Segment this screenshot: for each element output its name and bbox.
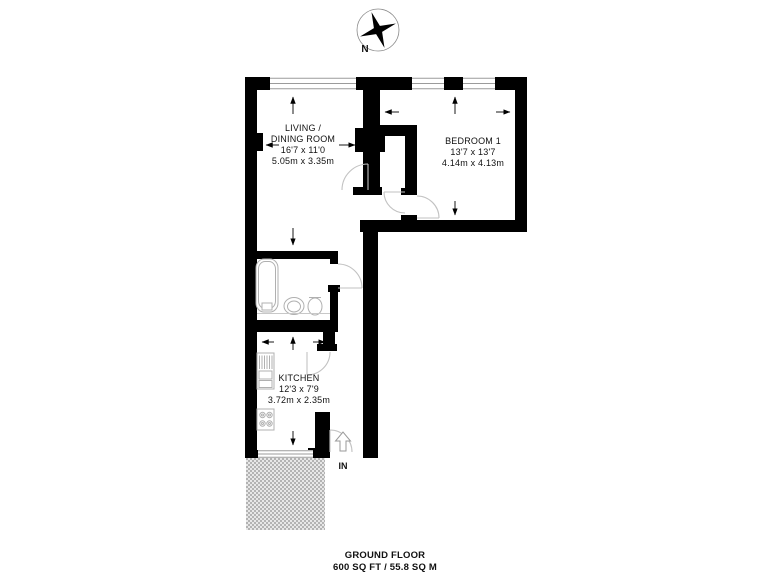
compass-icon: N [357,9,399,55]
entrance: IN [336,432,351,471]
footer: GROUND FLOOR 600 SQ FT / 55.8 SQ M [333,550,437,573]
wall-bedroom-right [515,77,527,232]
window-bedroom-2 [463,77,495,90]
hob-icon [257,409,274,430]
room-name: KITCHEN [279,373,320,383]
room-label-living-dining: LIVING / DINING ROOM 16'7 x 11'0 5.05m x… [271,123,335,166]
door-closet [384,192,405,213]
door-stop [317,344,337,351]
wall-closet-right [405,136,417,195]
door-stop [401,215,417,223]
room-dims-ft: 16'7 x 11'0 [281,145,326,155]
north-label: N [361,44,368,55]
floorplan-page: N [0,0,768,576]
wall-kitchen-right-upper [323,332,335,345]
compass-star [360,12,396,48]
floor-area: 600 SQ FT / 55.8 SQ M [333,562,437,573]
wall-bathroom-bottom [245,320,338,332]
room-name: BEDROOM 1 [445,136,501,146]
basin-icon [284,298,304,315]
room-name: LIVING / [285,123,321,133]
wall-kitchen-bottom-left [245,450,258,458]
wall-kitchen-bottom-right [313,450,330,458]
bathroom-fixtures [256,259,330,315]
room-dims-ft: 12'3 x 7'9 [279,384,319,394]
room-name: DINING ROOM [271,134,335,144]
window-bedroom-1 [412,77,444,90]
wall-bedroom-bottom [360,220,527,232]
bathtub-icon [256,259,278,312]
floorplan-drawing: N [0,0,768,576]
kitchen-fixtures [257,353,274,430]
room-label-kitchen: KITCHEN 12'3 x 7'9 3.72m x 2.35m [268,373,330,405]
wall-left-pier [257,133,263,151]
entrance-label: IN [339,461,348,471]
room-dims-m: 5.05m x 3.35m [272,156,334,166]
room-dims-m: 4.14m x 4.13m [442,158,504,168]
entrance-arrow-icon [336,432,351,451]
room-dims-ft: 13'7 x 13'7 [450,147,495,157]
door-bathroom [338,264,362,288]
wall-closet-top [378,125,417,136]
door-bedroom [417,196,439,218]
wall-bathroom-right-stub [330,258,338,264]
window-living [270,77,356,90]
room-label-bedroom-1: BEDROOM 1 13'7 x 13'7 4.14m x 4.13m [442,136,504,168]
door-kitchen [307,352,330,375]
terrace-hatch [246,457,325,530]
room-dims-m: 3.72m x 2.35m [268,395,330,405]
wall-left [245,77,257,458]
toilet-icon [308,298,322,316]
floor-title: GROUND FLOOR [345,550,426,561]
sink-unit-icon [257,353,274,389]
wall-corridor-right [363,232,378,458]
window-kitchen-patio [258,450,313,458]
wall-bathroom-top [245,251,338,259]
